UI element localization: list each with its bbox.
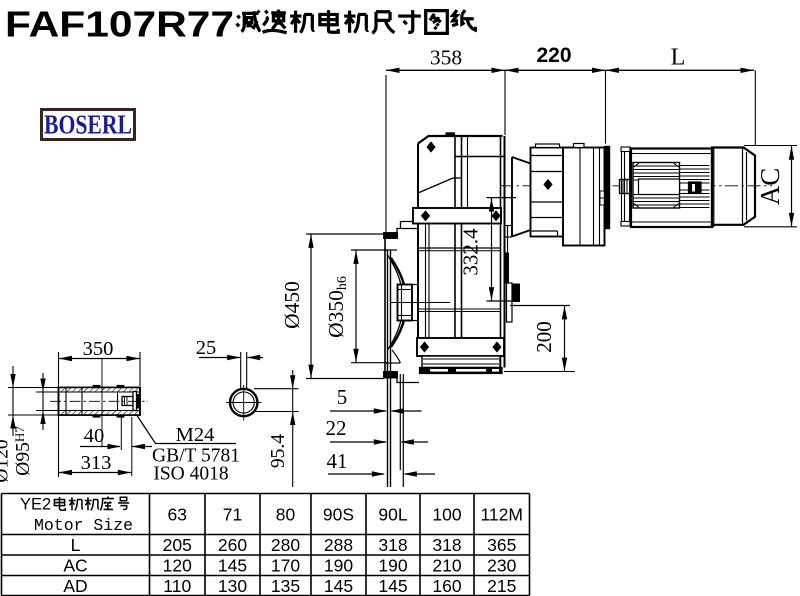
svg-text:Motor Size: Motor Size: [34, 516, 133, 535]
svg-text:YE2: YE2: [20, 496, 51, 514]
svg-text:145: 145: [324, 576, 353, 596]
svg-text:230: 230: [487, 556, 516, 576]
svg-text:BOSERL: BOSERL: [44, 110, 132, 140]
svg-text:350: 350: [83, 338, 114, 360]
svg-text:Ø120: Ø120: [0, 439, 13, 482]
svg-text:313: 313: [81, 452, 112, 474]
svg-text:95.4: 95.4: [268, 434, 289, 468]
svg-text:190: 190: [378, 556, 407, 576]
svg-text:332.4: 332.4: [459, 228, 483, 276]
svg-text:63: 63: [168, 505, 187, 525]
svg-text:22: 22: [326, 416, 347, 440]
svg-text:288: 288: [324, 535, 353, 555]
svg-text:L: L: [671, 45, 686, 71]
svg-text:210: 210: [432, 556, 461, 576]
svg-text:205: 205: [163, 535, 192, 555]
svg-text:160: 160: [432, 576, 461, 596]
svg-text:L: L: [71, 535, 81, 555]
svg-text:100: 100: [432, 505, 461, 525]
svg-text:135: 135: [271, 576, 300, 596]
svg-text:71: 71: [223, 505, 242, 525]
svg-text:FAF107R77: FAF107R77: [5, 4, 234, 45]
svg-text:90S: 90S: [323, 505, 354, 525]
svg-text:358: 358: [430, 46, 462, 70]
svg-text:110: 110: [163, 576, 191, 596]
svg-text:41: 41: [327, 449, 348, 473]
svg-text:ISO 4018: ISO 4018: [153, 464, 228, 485]
svg-text:170: 170: [271, 556, 300, 576]
svg-text:40: 40: [84, 425, 105, 447]
svg-text:145: 145: [378, 576, 407, 596]
svg-text:5: 5: [337, 385, 348, 409]
svg-text:AC: AC: [63, 556, 87, 576]
svg-text:318: 318: [432, 535, 461, 555]
svg-text:90L: 90L: [378, 505, 407, 525]
svg-text:260: 260: [218, 535, 247, 555]
svg-text:365: 365: [487, 535, 516, 555]
svg-text:120: 120: [163, 556, 192, 576]
svg-text:318: 318: [378, 535, 407, 555]
svg-text:AC: AC: [755, 168, 785, 206]
svg-text:200: 200: [532, 321, 556, 353]
svg-text:280: 280: [271, 535, 300, 555]
svg-text:Ø450: Ø450: [280, 281, 304, 329]
svg-text:M24: M24: [176, 424, 215, 446]
svg-text:215: 215: [487, 576, 516, 596]
svg-text:AD: AD: [63, 576, 87, 596]
svg-text:130: 130: [218, 576, 247, 596]
svg-text:80: 80: [276, 505, 296, 525]
svg-text:220: 220: [536, 44, 571, 67]
svg-text:145: 145: [218, 556, 247, 576]
svg-text:25: 25: [196, 337, 217, 359]
svg-text:190: 190: [324, 556, 353, 576]
svg-text:112M: 112M: [481, 505, 523, 525]
